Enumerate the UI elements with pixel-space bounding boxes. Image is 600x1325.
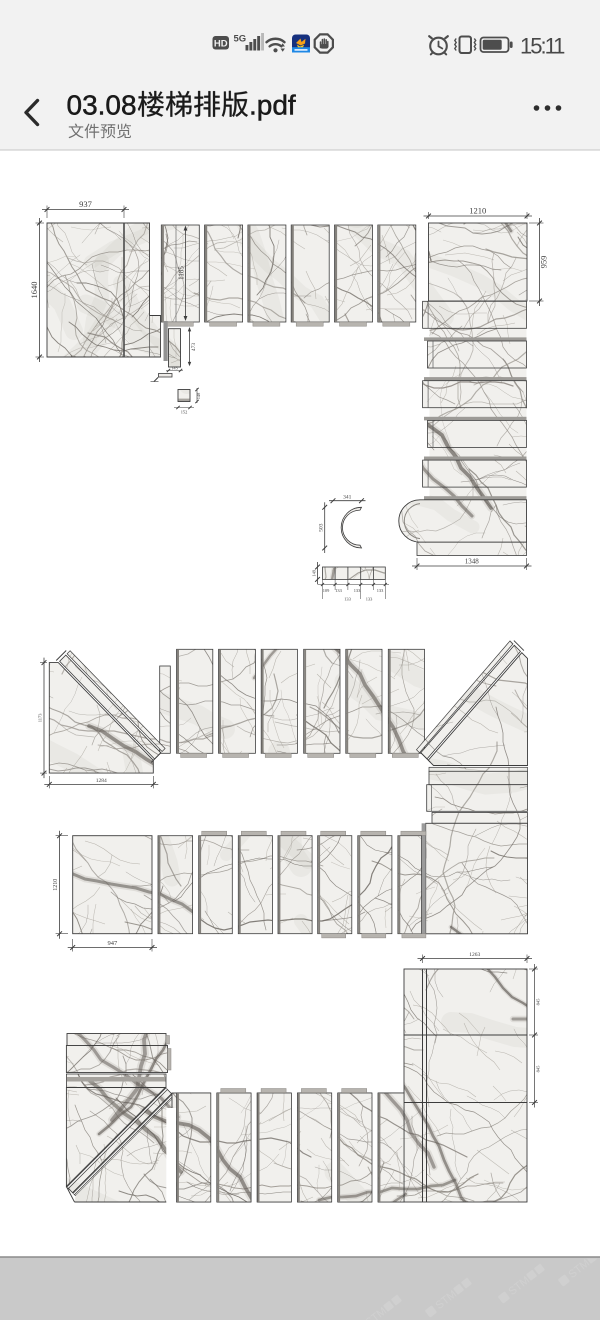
svg-text:109: 109 [323,588,330,593]
svg-text:937: 937 [79,199,92,209]
svg-text:152: 152 [181,410,188,415]
svg-text:145: 145 [171,365,178,370]
svg-text:1263: 1263 [469,952,480,958]
svg-text:133: 133 [354,588,361,593]
svg-text:959: 959 [539,256,549,269]
svg-text:845: 845 [536,1065,541,1073]
svg-text:133: 133 [344,597,351,602]
svg-text:133: 133 [377,588,384,593]
svg-text:133: 133 [335,588,342,593]
svg-text:1185: 1185 [177,266,185,280]
svg-text:1640: 1640 [29,282,39,299]
svg-text:1173: 1173 [38,713,43,723]
svg-text:947: 947 [107,940,118,947]
svg-text:341: 341 [343,495,352,501]
svg-text:845: 845 [536,998,541,1006]
svg-text:5G: 5G [234,34,247,45]
svg-text:133: 133 [366,597,373,602]
svg-text:03.08: 03.08 [67,90,137,121]
svg-text:473: 473 [191,343,197,352]
svg-text:15:11: 15:11 [520,34,565,59]
svg-text:503: 503 [319,523,325,532]
svg-text:HD: HD [214,39,228,50]
svg-text:1348: 1348 [465,558,480,566]
svg-text:149: 149 [312,569,317,577]
svg-text:1210: 1210 [469,206,486,216]
svg-text:1284: 1284 [96,778,107,784]
svg-text:1210: 1210 [53,879,59,891]
svg-text:.pdf: .pdf [249,90,296,121]
svg-text:148: 148 [196,392,201,399]
